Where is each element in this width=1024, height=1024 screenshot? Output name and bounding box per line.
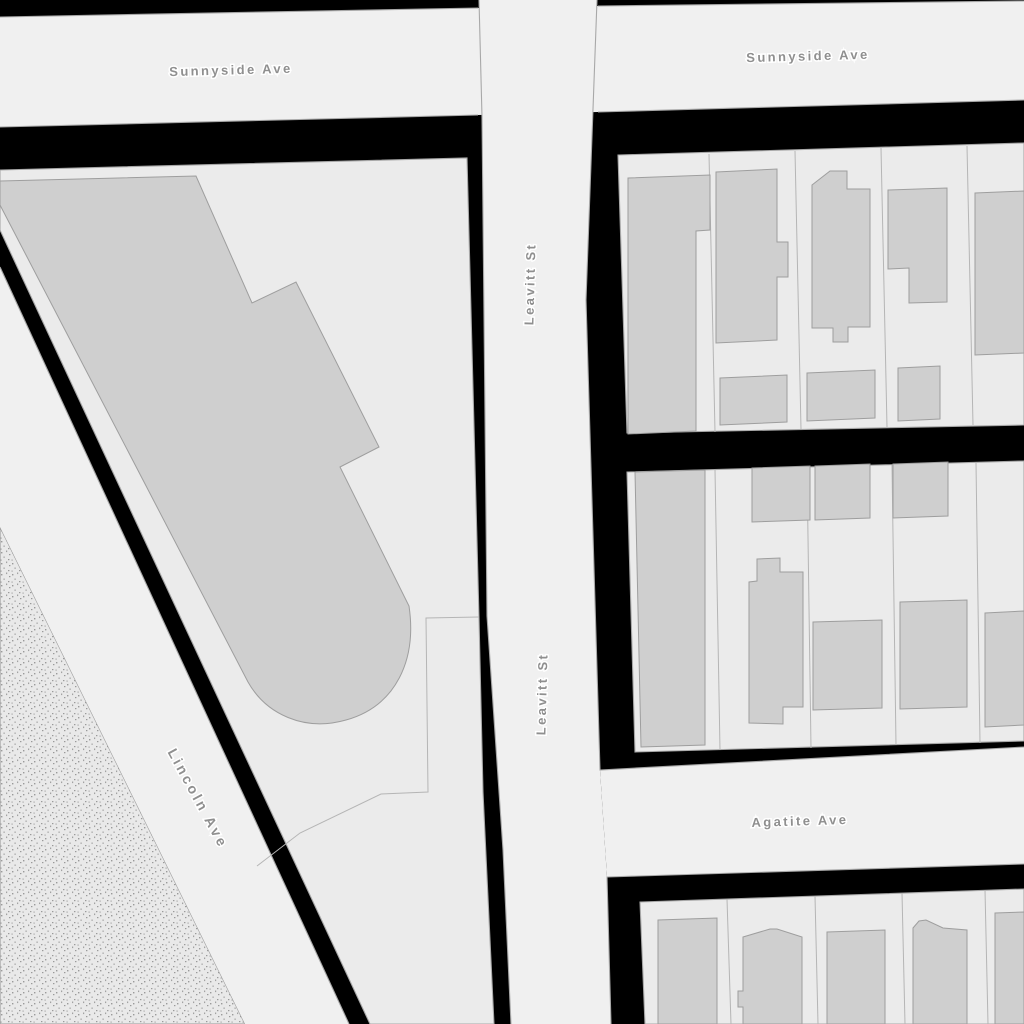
building <box>635 470 705 747</box>
building <box>893 462 948 518</box>
building <box>752 466 810 522</box>
building <box>900 600 967 709</box>
building <box>720 375 787 425</box>
building <box>827 930 885 1024</box>
building <box>995 912 1024 1024</box>
building <box>913 920 967 1024</box>
building <box>898 366 940 421</box>
building <box>807 370 875 421</box>
street-label-leavitt-st-south: Leavitt St <box>533 653 550 736</box>
building <box>985 611 1024 727</box>
building <box>738 929 802 1024</box>
building <box>812 171 870 342</box>
building <box>716 169 788 343</box>
building <box>815 464 870 520</box>
building <box>658 918 717 1024</box>
map-viewport[interactable]: Sunnyside Ave Sunnyside Ave Leavitt St L… <box>0 0 1024 1024</box>
building <box>975 191 1024 355</box>
street-label-agatite-ave: Agatite Ave <box>751 812 848 830</box>
street-label-leavitt-st-north: Leavitt St <box>521 243 538 326</box>
building <box>813 620 882 710</box>
map-canvas[interactable]: Sunnyside Ave Sunnyside Ave Leavitt St L… <box>0 0 1024 1024</box>
building <box>749 558 803 724</box>
